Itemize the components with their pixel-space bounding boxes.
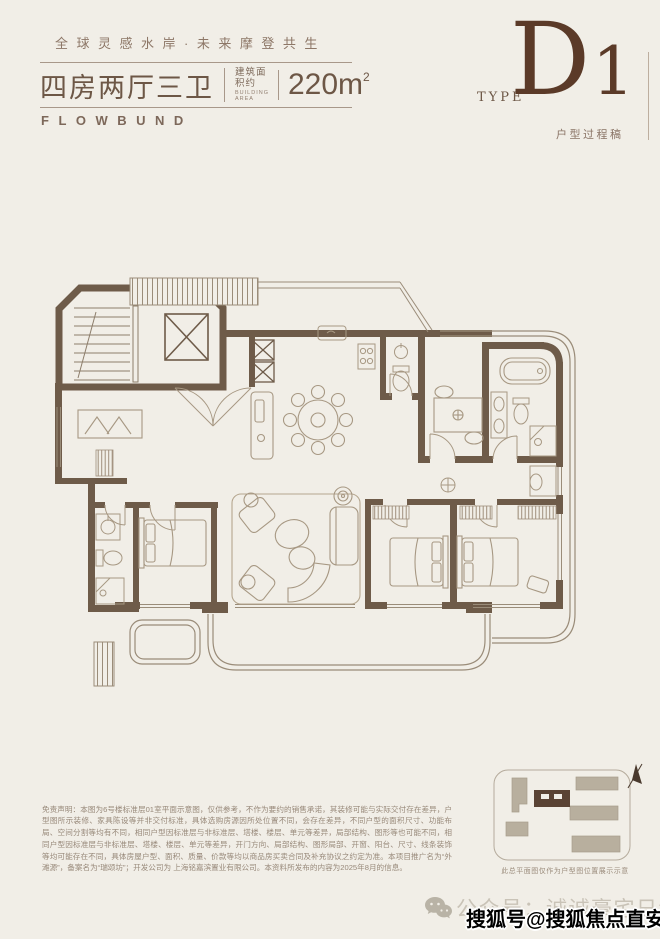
door-arcs — [105, 505, 497, 530]
bed-right — [457, 536, 549, 594]
bed-middle — [390, 536, 448, 588]
closet — [96, 450, 113, 476]
bathtub-icon — [500, 358, 550, 384]
bathroom-left-fixtures — [96, 514, 124, 604]
site-plan-caption: 此总平面图仅作为户型图位置展示示意 — [482, 866, 648, 876]
walls — [55, 288, 563, 613]
wechat-icon — [424, 896, 452, 920]
area-number: 220m — [288, 70, 363, 100]
type-letter-d: D — [510, 12, 590, 107]
armchair-bottom — [237, 564, 277, 603]
armchair-top — [237, 496, 277, 535]
study-desk — [434, 386, 483, 444]
area-label-en: BUILDING AREA — [235, 90, 269, 103]
watermark: 搜狐号@搜狐焦点直安店 — [466, 903, 660, 932]
speaker — [334, 487, 352, 505]
site-buildings — [506, 777, 620, 852]
type-digit-1: 1 — [592, 39, 634, 105]
type-note: 户型过程稿 — [556, 126, 624, 142]
sofa-curve — [288, 563, 330, 602]
site-building-highlighted — [534, 790, 570, 807]
shower-icon — [530, 426, 556, 456]
ac-louver — [94, 642, 114, 686]
wardrobes — [373, 506, 556, 519]
area-label-cn: 建筑面积约 — [235, 68, 269, 90]
bath-door-arc — [493, 436, 517, 459]
brand-name: FLOWBUND — [41, 113, 193, 128]
shaft-icons — [252, 340, 274, 382]
bed-left — [139, 518, 206, 568]
floorplan-drawing — [30, 252, 645, 712]
entry-door-arc — [175, 388, 251, 426]
side-table-2 — [241, 575, 255, 589]
toilet-icon — [513, 398, 529, 424]
area-label: 建筑面积约 BUILDING AREA — [224, 68, 269, 102]
dining-table-icon — [284, 386, 353, 455]
header-tagline: 全球灵感水岸·未来摩登共生 — [55, 33, 355, 52]
disclaimer-text: 免责声明：本图为6号楼标准层01室平面示意图，仅供参考，不作为要约的销售承诺，其… — [42, 804, 452, 875]
living-room — [232, 487, 360, 604]
decorative-rule — [648, 52, 649, 140]
study-door-arc — [430, 434, 455, 459]
bedroom-desk — [441, 466, 556, 496]
type-value: D 1 — [510, 12, 634, 107]
site-plan — [484, 760, 650, 866]
area-value: 220m 2 — [278, 70, 370, 100]
vanity-icon — [491, 392, 507, 438]
coffee-table — [271, 515, 313, 553]
sofa-seat — [330, 507, 358, 565]
area-superscript: 2 — [363, 71, 370, 83]
compass-north-icon — [628, 764, 642, 788]
title-strip: 四房两厅三卫 建筑面积约 BUILDING AREA 220m 2 — [40, 62, 352, 108]
page-title: 四房两厅三卫 — [40, 66, 214, 105]
rug — [232, 494, 360, 604]
powder-room-fixtures — [393, 343, 409, 391]
entry-bench — [78, 410, 142, 438]
kitchen-island — [251, 392, 273, 459]
stove-icon — [358, 344, 375, 369]
stairs — [74, 306, 138, 382]
